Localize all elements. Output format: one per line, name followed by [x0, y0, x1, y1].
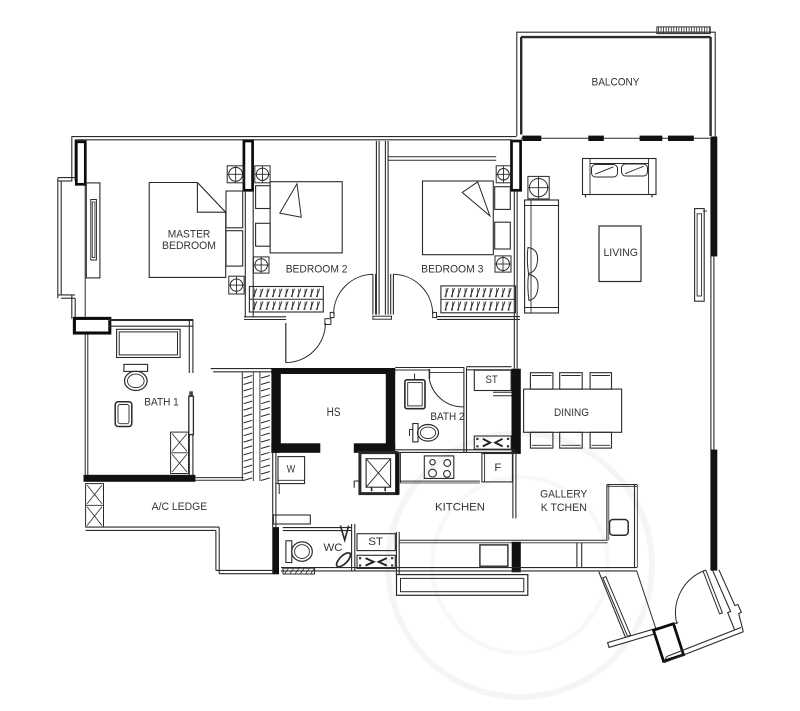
svg-text:A/C LEDGE: A/C LEDGE — [152, 501, 208, 513]
svg-text:DINING: DINING — [554, 407, 589, 419]
svg-text:HS: HS — [327, 405, 341, 419]
svg-text:LIVING: LIVING — [603, 247, 638, 259]
svg-text:BATH 1: BATH 1 — [144, 397, 178, 409]
svg-text:KITCHEN: KITCHEN — [435, 502, 485, 514]
svg-text:WC: WC — [324, 542, 343, 554]
svg-text:BEDROOM 2: BEDROOM 2 — [286, 264, 348, 276]
svg-text:K TCHEN: K TCHEN — [541, 502, 587, 514]
svg-text:ST: ST — [368, 536, 383, 548]
svg-text:W: W — [287, 464, 296, 476]
svg-text:GALLERY: GALLERY — [540, 489, 588, 501]
svg-text:BEDROOM: BEDROOM — [162, 240, 216, 252]
svg-text:BEDROOM 3: BEDROOM 3 — [421, 264, 483, 276]
svg-text:F: F — [494, 462, 501, 474]
svg-text:BATH 2: BATH 2 — [430, 411, 464, 423]
svg-text:MASTER: MASTER — [168, 228, 211, 240]
svg-text:BALCONY: BALCONY — [592, 77, 640, 89]
svg-text:ST: ST — [485, 374, 497, 386]
